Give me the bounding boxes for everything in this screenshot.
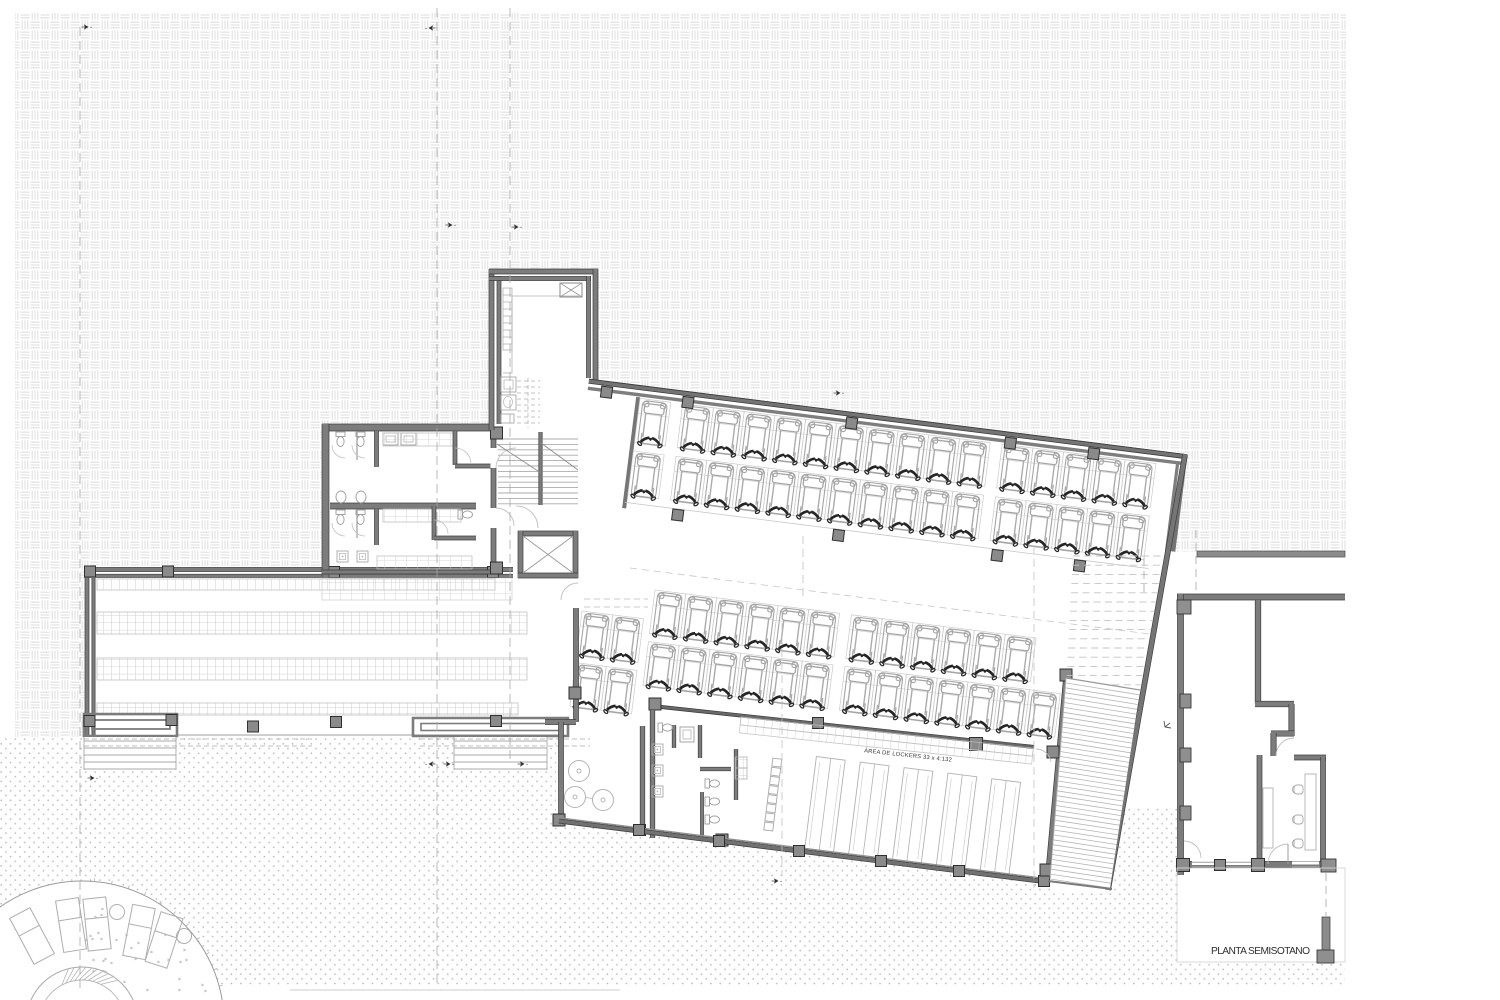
svg-text:PLANTA SEMISOTANO: PLANTA SEMISOTANO	[1211, 946, 1310, 957]
